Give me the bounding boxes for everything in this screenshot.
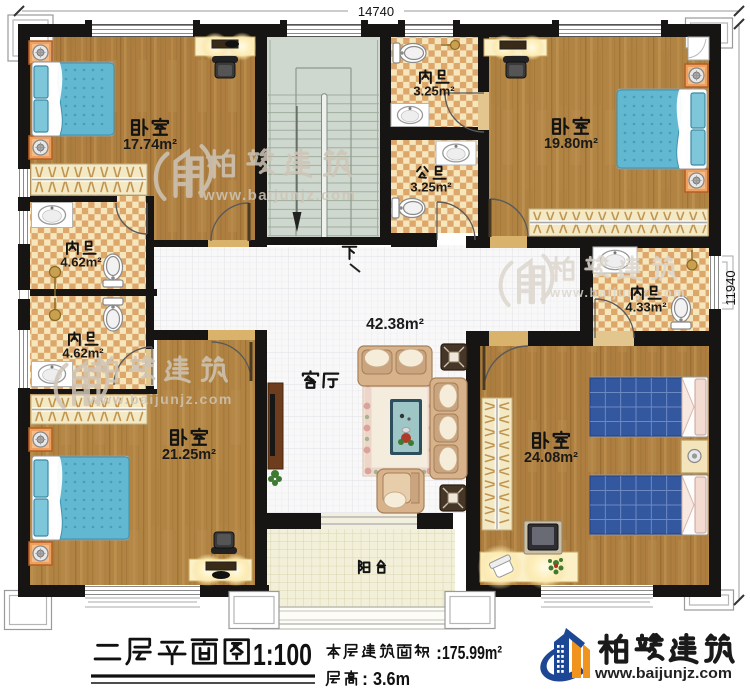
svg-text:19.80m²: 19.80m² [544, 136, 598, 152]
svg-text:www.baijunjz.com: www.baijunjz.com [87, 391, 233, 407]
svg-text:www.baijunjz.com: www.baijunjz.com [202, 187, 356, 204]
svg-text:175.99m²: 175.99m² [442, 642, 502, 663]
svg-text:11940: 11940 [723, 270, 738, 305]
svg-text:21.25m²: 21.25m² [162, 447, 216, 463]
svg-text:3.6m: 3.6m [373, 668, 410, 689]
svg-text:4.33m²: 4.33m² [625, 299, 667, 314]
svg-text:14740: 14740 [358, 4, 394, 19]
svg-text:3.25m²: 3.25m² [410, 179, 452, 194]
svg-text:17.74m²: 17.74m² [123, 137, 177, 153]
svg-text:3.25m²: 3.25m² [413, 83, 455, 98]
svg-text::: : [362, 669, 368, 689]
svg-text:www.baijunjz.com: www.baijunjz.com [549, 285, 686, 300]
svg-text:4.62m²: 4.62m² [60, 254, 102, 269]
svg-text:1:100: 1:100 [253, 637, 312, 672]
svg-text:www.baijunjz.com: www.baijunjz.com [594, 665, 732, 682]
svg-text:4.62m²: 4.62m² [62, 345, 104, 360]
svg-text:42.38m²: 42.38m² [366, 316, 424, 333]
svg-text:24.08m²: 24.08m² [524, 450, 578, 466]
